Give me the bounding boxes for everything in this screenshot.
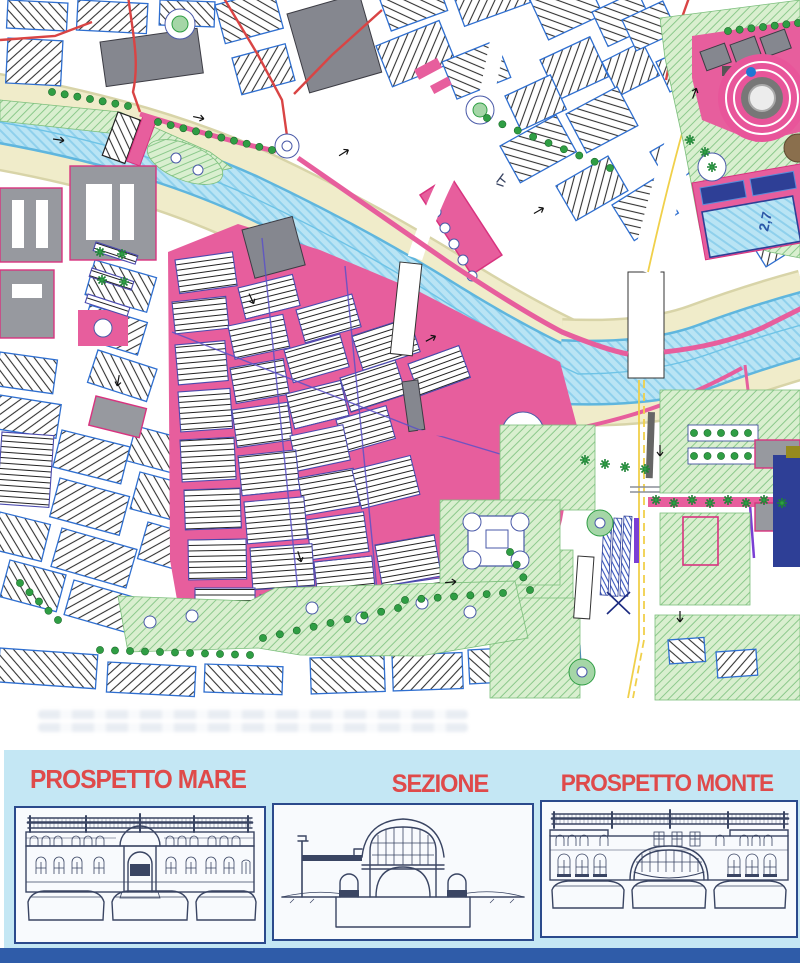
city-plan-map: 2,7 <box>0 0 800 705</box>
scanned-plan-document: { "map": { "pool_depth_label": "2,7" }, … <box>0 0 800 963</box>
title-prospetto-monte: PROSPETTO MONTE <box>548 770 787 798</box>
bridge-main-road <box>628 272 664 378</box>
blue-marker <box>746 67 756 77</box>
title-prospetto-mare: PROSPETTO MARE <box>21 764 254 795</box>
title-sezione: SEZIONE <box>355 770 524 799</box>
monument-dome <box>749 85 775 111</box>
footer-bar <box>0 948 800 963</box>
prospetto-monte-drawing <box>540 800 798 938</box>
illegible-caption-line <box>38 710 468 719</box>
illegible-caption <box>38 706 468 746</box>
illegible-caption-line <box>38 723 468 732</box>
four-lobe-building <box>463 513 529 569</box>
elevations-panel: PROSPETTO MARE SEZIONE PROSPETTO MONTE <box>4 750 800 948</box>
prospetto-mare-drawing <box>14 806 266 944</box>
east-residential <box>648 390 800 700</box>
navy-building <box>773 455 800 567</box>
sezione-drawing <box>272 803 534 941</box>
